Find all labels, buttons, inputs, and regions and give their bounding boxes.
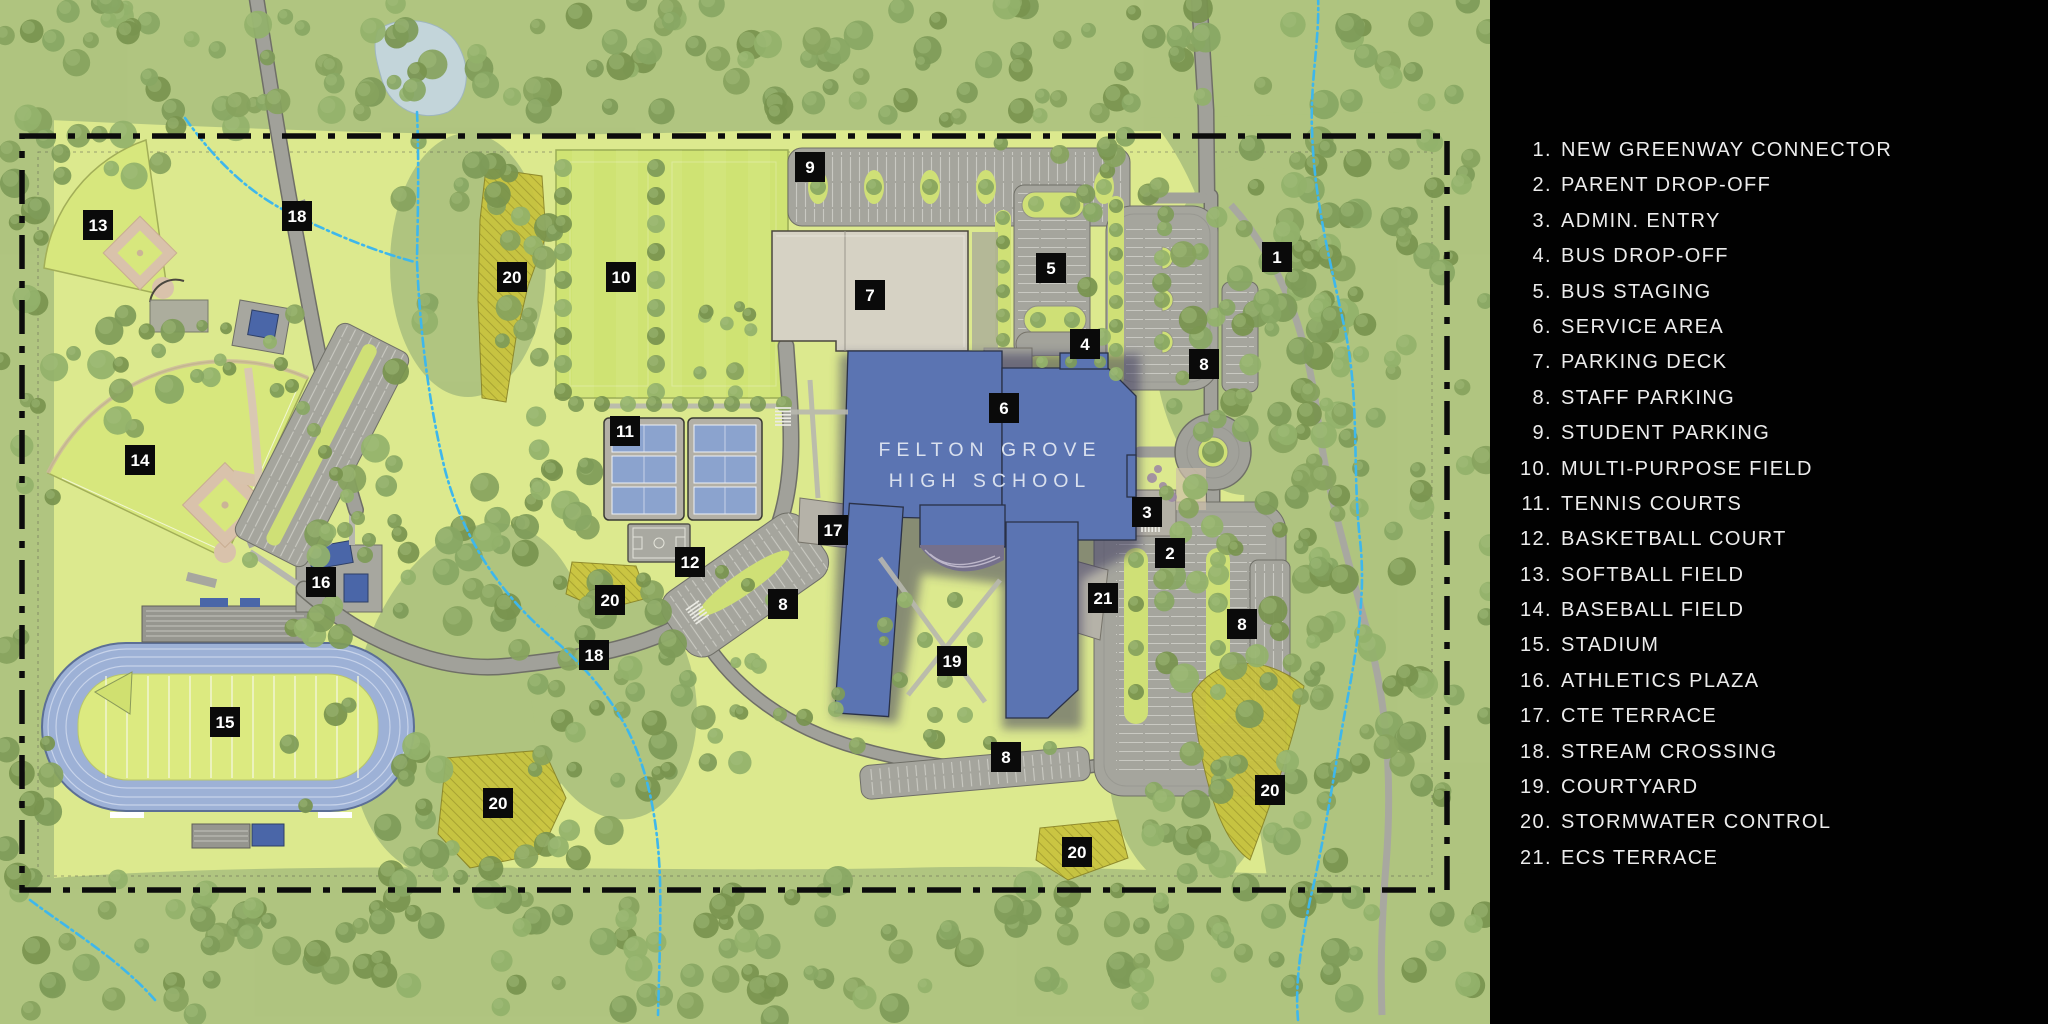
legend-item-label: SERVICE AREA	[1561, 316, 1724, 339]
site-plan-map: 9113182010754861114312172162082181819158…	[0, 0, 1490, 1024]
field-restroom-building	[232, 300, 291, 354]
map-marker-8: 8	[1189, 349, 1219, 379]
map-marker-12: 12	[675, 547, 705, 577]
legend-item-18: 18.STREAM CROSSING	[1490, 741, 2048, 776]
legend-item-1: 1.NEW GREENWAY CONNECTOR	[1490, 139, 2048, 174]
legend-item-number: 14.	[1490, 599, 1552, 622]
legend-item-label: STORMWATER CONTROL	[1561, 811, 1831, 834]
legend-item-number: 18.	[1490, 741, 1552, 764]
legend-item-label: ADMIN. ENTRY	[1561, 210, 1721, 233]
legend-item-label: TENNIS COURTS	[1561, 493, 1742, 516]
legend-item-13: 13.SOFTBALL FIELD	[1490, 564, 2048, 599]
map-marker-20: 20	[483, 788, 513, 818]
map-marker-21: 21	[1088, 583, 1118, 613]
legend-item-label: STREAM CROSSING	[1561, 741, 1778, 764]
legend-item-number: 16.	[1490, 670, 1552, 693]
legend-item-4: 4.BUS DROP-OFF	[1490, 245, 2048, 280]
building-name-line1: FELTON GROVE	[879, 439, 1102, 461]
legend-item-label: BUS DROP-OFF	[1561, 245, 1729, 268]
legend-item-number: 17.	[1490, 705, 1552, 728]
legend-item-11: 11.TENNIS COURTS	[1490, 493, 2048, 528]
building-name-line2: HIGH SCHOOL	[889, 470, 1092, 492]
legend-item-label: ATHLETICS PLAZA	[1561, 670, 1759, 693]
svg-text:18: 18	[288, 207, 307, 226]
legend-item-label: NEW GREENWAY CONNECTOR	[1561, 139, 1892, 162]
legend-item-label: STADIUM	[1561, 634, 1659, 657]
legend-item-label: ECS TERRACE	[1561, 847, 1718, 870]
legend-item-label: COURTYARD	[1561, 776, 1698, 799]
map-marker-11: 11	[610, 416, 640, 446]
map-marker-14: 14	[125, 445, 155, 475]
svg-text:20: 20	[1068, 843, 1087, 862]
legend-item-number: 11.	[1490, 493, 1552, 516]
svg-text:5: 5	[1046, 259, 1055, 278]
map-marker-18: 18	[579, 640, 609, 670]
svg-text:18: 18	[585, 646, 604, 665]
legend-panel: 1.NEW GREENWAY CONNECTOR2.PARENT DROP-OF…	[1490, 0, 2048, 1024]
legend-item-label: PARENT DROP-OFF	[1561, 174, 1771, 197]
multi-purpose-field	[556, 150, 788, 398]
legend-item-number: 13.	[1490, 564, 1552, 587]
svg-text:20: 20	[1261, 781, 1280, 800]
svg-text:21: 21	[1094, 589, 1113, 608]
legend-item-17: 17.CTE TERRACE	[1490, 705, 2048, 740]
legend-item-label: SOFTBALL FIELD	[1561, 564, 1744, 587]
legend-item-label: BASKETBALL COURT	[1561, 528, 1787, 551]
legend-item-number: 9.	[1490, 422, 1552, 445]
legend-item-15: 15.STADIUM	[1490, 634, 2048, 669]
legend-item-number: 3.	[1490, 210, 1552, 233]
legend-item-label: BASEBALL FIELD	[1561, 599, 1744, 622]
legend-item-label: BUS STAGING	[1561, 281, 1712, 304]
legend-item-number: 12.	[1490, 528, 1552, 551]
legend-item-number: 2.	[1490, 174, 1552, 197]
svg-text:8: 8	[778, 595, 787, 614]
legend-item-number: 20.	[1490, 811, 1552, 834]
legend-item-number: 15.	[1490, 634, 1552, 657]
map-marker-15: 15	[210, 707, 240, 737]
legend-item-number: 19.	[1490, 776, 1552, 799]
legend-item-number: 7.	[1490, 351, 1552, 374]
svg-text:8: 8	[1001, 748, 1010, 767]
legend-item-number: 8.	[1490, 387, 1552, 410]
legend-item-8: 8.STAFF PARKING	[1490, 387, 2048, 422]
legend-item-9: 9.STUDENT PARKING	[1490, 422, 2048, 457]
legend-item-label: CTE TERRACE	[1561, 705, 1717, 728]
map-marker-19: 19	[937, 646, 967, 676]
map-marker-16: 16	[306, 567, 336, 597]
svg-text:11: 11	[616, 422, 634, 441]
map-marker-3: 3	[1132, 497, 1162, 527]
legend-item-10: 10.MULTI-PURPOSE FIELD	[1490, 458, 2048, 493]
map-marker-18: 18	[282, 201, 312, 231]
legend-item-20: 20.STORMWATER CONTROL	[1490, 811, 2048, 846]
map-marker-13: 13	[83, 210, 113, 240]
map-marker-8: 8	[1227, 609, 1257, 639]
legend-item-label: MULTI-PURPOSE FIELD	[1561, 458, 1813, 481]
svg-text:14: 14	[131, 451, 150, 470]
map-marker-4: 4	[1070, 329, 1100, 359]
svg-text:19: 19	[943, 652, 962, 671]
svg-text:15: 15	[216, 713, 235, 732]
svg-text:17: 17	[824, 521, 843, 540]
map-marker-8: 8	[991, 742, 1021, 772]
legend-item-number: 4.	[1490, 245, 1552, 268]
svg-text:8: 8	[1237, 615, 1246, 634]
map-marker-9: 9	[795, 152, 825, 182]
svg-text:6: 6	[999, 399, 1008, 418]
legend-item-number: 5.	[1490, 281, 1552, 304]
legend-item-7: 7.PARKING DECK	[1490, 351, 2048, 386]
legend-item-number: 10.	[1490, 458, 1552, 481]
legend-item-6: 6.SERVICE AREA	[1490, 316, 2048, 351]
map-marker-2: 2	[1155, 538, 1185, 568]
svg-text:12: 12	[681, 553, 700, 572]
map-marker-6: 6	[989, 393, 1019, 423]
svg-text:7: 7	[865, 286, 874, 305]
svg-text:13: 13	[89, 216, 108, 235]
legend-item-label: PARKING DECK	[1561, 351, 1727, 374]
svg-text:1: 1	[1272, 248, 1281, 267]
map-marker-20: 20	[497, 262, 527, 292]
map-marker-5: 5	[1036, 253, 1066, 283]
map-marker-20: 20	[595, 585, 625, 615]
svg-text:16: 16	[312, 573, 331, 592]
legend-item-19: 19.COURTYARD	[1490, 776, 2048, 811]
svg-text:8: 8	[1199, 355, 1208, 374]
legend-list: 1.NEW GREENWAY CONNECTOR2.PARENT DROP-OF…	[1490, 0, 2048, 882]
legend-item-16: 16.ATHLETICS PLAZA	[1490, 670, 2048, 705]
legend-item-number: 6.	[1490, 316, 1552, 339]
map-marker-7: 7	[855, 280, 885, 310]
svg-text:3: 3	[1142, 503, 1151, 522]
svg-text:20: 20	[503, 268, 522, 287]
map-marker-1: 1	[1262, 242, 1292, 272]
site-plan-page: 9113182010754861114312172162082181819158…	[0, 0, 2048, 1024]
svg-text:20: 20	[601, 591, 620, 610]
svg-text:10: 10	[612, 268, 631, 287]
map-marker-8: 8	[768, 589, 798, 619]
legend-item-number: 21.	[1490, 847, 1552, 870]
map-marker-20: 20	[1255, 775, 1285, 805]
map-marker-10: 10	[606, 262, 636, 292]
site-plan-svg: 9113182010754861114312172162082181819158…	[0, 0, 1490, 1024]
map-marker-20: 20	[1062, 837, 1092, 867]
legend-item-2: 2.PARENT DROP-OFF	[1490, 174, 2048, 209]
legend-item-14: 14.BASEBALL FIELD	[1490, 599, 2048, 634]
legend-item-3: 3.ADMIN. ENTRY	[1490, 210, 2048, 245]
svg-text:20: 20	[489, 794, 508, 813]
legend-item-12: 12.BASKETBALL COURT	[1490, 528, 2048, 563]
legend-item-label: STAFF PARKING	[1561, 387, 1735, 410]
legend-item-number: 1.	[1490, 139, 1552, 162]
svg-text:4: 4	[1080, 335, 1090, 354]
svg-text:2: 2	[1165, 544, 1174, 563]
legend-item-5: 5.BUS STAGING	[1490, 281, 2048, 316]
legend-item-label: STUDENT PARKING	[1561, 422, 1770, 445]
legend-item-21: 21.ECS TERRACE	[1490, 847, 2048, 882]
map-marker-17: 17	[818, 515, 848, 545]
svg-text:9: 9	[805, 158, 814, 177]
